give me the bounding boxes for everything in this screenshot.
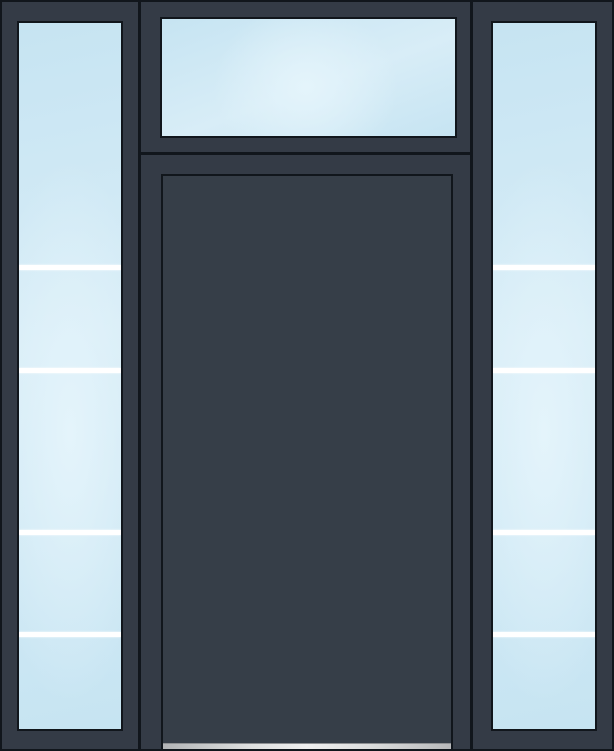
left-sidelite-glass — [17, 21, 123, 731]
glass-divider-bar — [493, 530, 595, 535]
left-unit-seam — [138, 0, 141, 751]
door-unit-preview — [0, 0, 614, 751]
transom-glass — [160, 17, 457, 138]
door-sill — [163, 743, 451, 750]
glass-divider-bar — [19, 368, 121, 373]
glass-divider-bar — [19, 632, 121, 637]
door-slab — [161, 174, 453, 751]
glass-divider-bar — [19, 530, 121, 535]
right-unit-seam — [470, 0, 473, 751]
glass-divider-bar — [493, 368, 595, 373]
transom-rail-seam — [138, 152, 473, 155]
glass-divider-bar — [493, 265, 595, 270]
glass-divider-bar — [19, 265, 121, 270]
glass-divider-bar — [493, 632, 595, 637]
right-sidelite-glass — [491, 21, 597, 731]
